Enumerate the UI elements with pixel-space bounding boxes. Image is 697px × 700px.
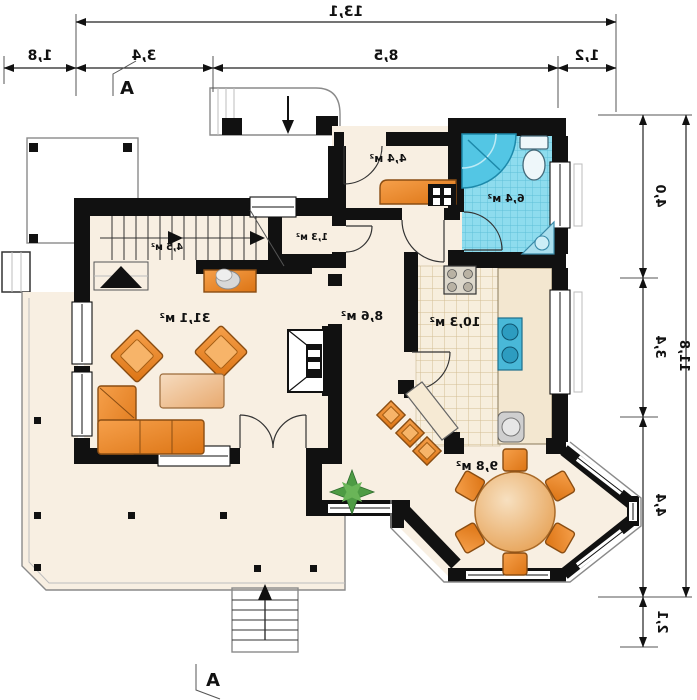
fireplace (288, 326, 342, 396)
section-marker-top: A (113, 61, 136, 99)
dim-right-total: 11,8 (676, 340, 691, 372)
porch-post (29, 143, 38, 152)
room-label-dining: 9,8 м² (456, 458, 498, 473)
entry-arrow-head (282, 120, 294, 134)
dim-top-seg-3: 8,5 (374, 48, 399, 64)
dim-top-total: 13,1 (329, 4, 364, 20)
dim-right-seg-2: 3,4 (652, 335, 667, 358)
toilet-bowl (523, 150, 545, 180)
bay-wall-w (390, 504, 404, 528)
terrace-post (254, 565, 261, 572)
bottom-entry-steps (232, 584, 298, 652)
toilet-tank (520, 136, 548, 149)
dim-right-seg-1: 4,0 (652, 184, 667, 207)
stairs-bench (204, 269, 256, 292)
floor-plan-drawing: 4,5 м² 1,3 м² 4,4 м² 6,4 м² 8,6 м² 10,3 … (0, 0, 697, 700)
shoe-cabinet (428, 184, 456, 206)
dim-right-seg-4: 2,1 (654, 610, 669, 633)
chimney-block (2, 252, 30, 292)
terrace-post (128, 512, 135, 519)
dining-chair (503, 553, 527, 575)
section-letter-top: A (120, 78, 134, 99)
room-label-wc: 1,3 м² (296, 232, 328, 243)
room-label-hall: 4,4 м² (369, 152, 406, 165)
porch-post (123, 143, 132, 152)
room-label-living: 31,1 м² (160, 310, 211, 325)
floor-plan-canvas: 4,5 м² 1,3 м² 4,4 м² 6,4 м² 8,6 м² 10,3 … (0, 0, 697, 700)
room-label-bathroom: 6,4 м² (487, 192, 524, 205)
dining-chair (503, 449, 527, 471)
porch-post (29, 234, 38, 243)
window-sill (574, 164, 582, 226)
hall-wardrobe (380, 180, 456, 206)
window-sill (574, 292, 582, 392)
coffee-table (160, 374, 224, 408)
top-dimensions: 13,1 1,8 3,4 8,5 1,2 (4, 4, 616, 112)
sink-basin (535, 236, 549, 250)
right-dimensions: 4,0 3,4 4,4 2,1 11,8 (598, 115, 692, 647)
room-label-corridor: 8,6 м² (341, 308, 383, 323)
porch-pillar (222, 118, 242, 135)
terrace-post (34, 564, 41, 571)
room-label-kitchen: 10,3 м² (430, 314, 481, 329)
section-letter-bottom: A (206, 670, 220, 691)
dining-table (475, 472, 555, 552)
section-marker-bottom: A (196, 664, 220, 699)
dim-top-seg-4: 1,2 (575, 48, 600, 64)
terrace-post (310, 565, 317, 572)
room-label-stairs: 4,5 м² (151, 242, 183, 253)
dim-top-seg-1: 1,8 (28, 48, 53, 64)
terrace-post (220, 512, 227, 519)
dim-right-seg-3: 4,4 (652, 493, 667, 516)
terrace-post (34, 512, 41, 519)
terrace-post (34, 417, 41, 424)
entrance-porch-top (210, 88, 340, 135)
